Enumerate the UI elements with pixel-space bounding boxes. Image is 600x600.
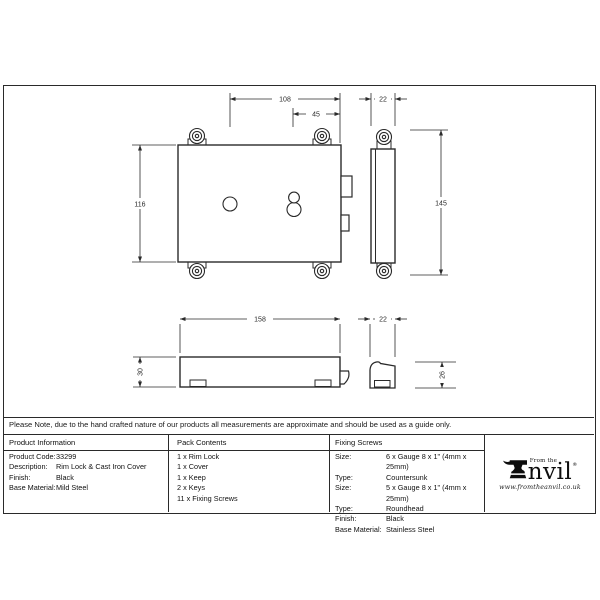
dim-keep-height: 26 — [440, 371, 447, 379]
table-row: Finish: Black — [9, 473, 164, 483]
dim-keep-width: 22 — [379, 317, 387, 324]
table-row: Type: Roundhead — [335, 504, 481, 514]
side-view-drawing — [371, 130, 395, 279]
dim-front-width: 108 — [279, 97, 291, 104]
front-view-drawing — [178, 129, 352, 279]
divider — [3, 417, 594, 418]
table-row: Size: 6 x Gauge 8 x 1" (4mm x 25mm) — [335, 452, 481, 473]
pack-contents-header: Pack Contents — [177, 438, 226, 447]
brand-name: nvil — [528, 463, 573, 482]
dim-keyhole-backset: 45 — [312, 112, 320, 119]
dim-side-height: 145 — [435, 201, 447, 208]
table-row: Base Material: Stainless Steel — [335, 525, 481, 535]
list-item: 11 x Fixing Screws — [177, 494, 325, 504]
list-item: 2 x Keys — [177, 483, 325, 493]
list-item: 1 x Keep — [177, 473, 325, 483]
table-row: Description: Rim Lock & Cast Iron Cover — [9, 462, 164, 472]
column-divider — [168, 434, 169, 512]
fixing-screws-table: Size: 6 x Gauge 8 x 1" (4mm x 25mm) Type… — [335, 452, 481, 535]
dead-bolt — [341, 215, 349, 231]
list-item: 1 x Cover — [177, 462, 325, 472]
pack-contents-list: 1 x Rim Lock 1 x Cover 1 x Keep 2 x Keys… — [177, 452, 325, 504]
brand-logo: From the nvil ® www.fromtheanvil.co.uk — [484, 435, 596, 513]
registered-mark: ® — [572, 462, 577, 468]
side-body — [371, 149, 395, 263]
dim-plan-depth: 30 — [138, 368, 145, 376]
dim-plan-length: 158 — [254, 317, 266, 324]
dim-side-width: 22 — [379, 97, 387, 104]
table-row: Size: 5 x Gauge 8 x 1" (4mm x 25mm) — [335, 483, 481, 504]
table-header-underline — [3, 450, 484, 451]
brand-website: www.fromtheanvil.co.uk — [499, 484, 581, 491]
technical-drawing: 108 45 116 22 145 158 30 22 26 — [0, 0, 600, 430]
column-divider — [329, 434, 330, 512]
table-row: Base Material: Mild Steel — [9, 483, 164, 493]
product-information-header: Product Information — [9, 438, 75, 447]
front-body — [178, 145, 341, 262]
product-information-table: Product Code: 33299 Description: Rim Loc… — [9, 452, 164, 494]
fixing-screws-header: Fixing Screws — [335, 438, 382, 447]
table-row: Finish: Black — [335, 514, 481, 524]
keep-profile-drawing — [370, 362, 395, 388]
table-row: Type: Countersunk — [335, 473, 481, 483]
list-item: 1 x Rim Lock — [177, 452, 325, 462]
spec-sheet: 108 45 116 22 145 158 30 22 26 Please No… — [0, 0, 600, 600]
dim-front-height: 116 — [134, 202, 145, 209]
spindle-hole — [223, 197, 237, 211]
table-row: Product Code: 33299 — [9, 452, 164, 462]
keyhole — [287, 192, 301, 216]
latch-bolt — [341, 176, 352, 197]
disclaimer-note: Please Note, due to the hand crafted nat… — [9, 420, 451, 429]
plan-view-drawing — [180, 357, 349, 387]
plan-latch — [340, 371, 349, 384]
anvil-icon — [503, 458, 527, 482]
